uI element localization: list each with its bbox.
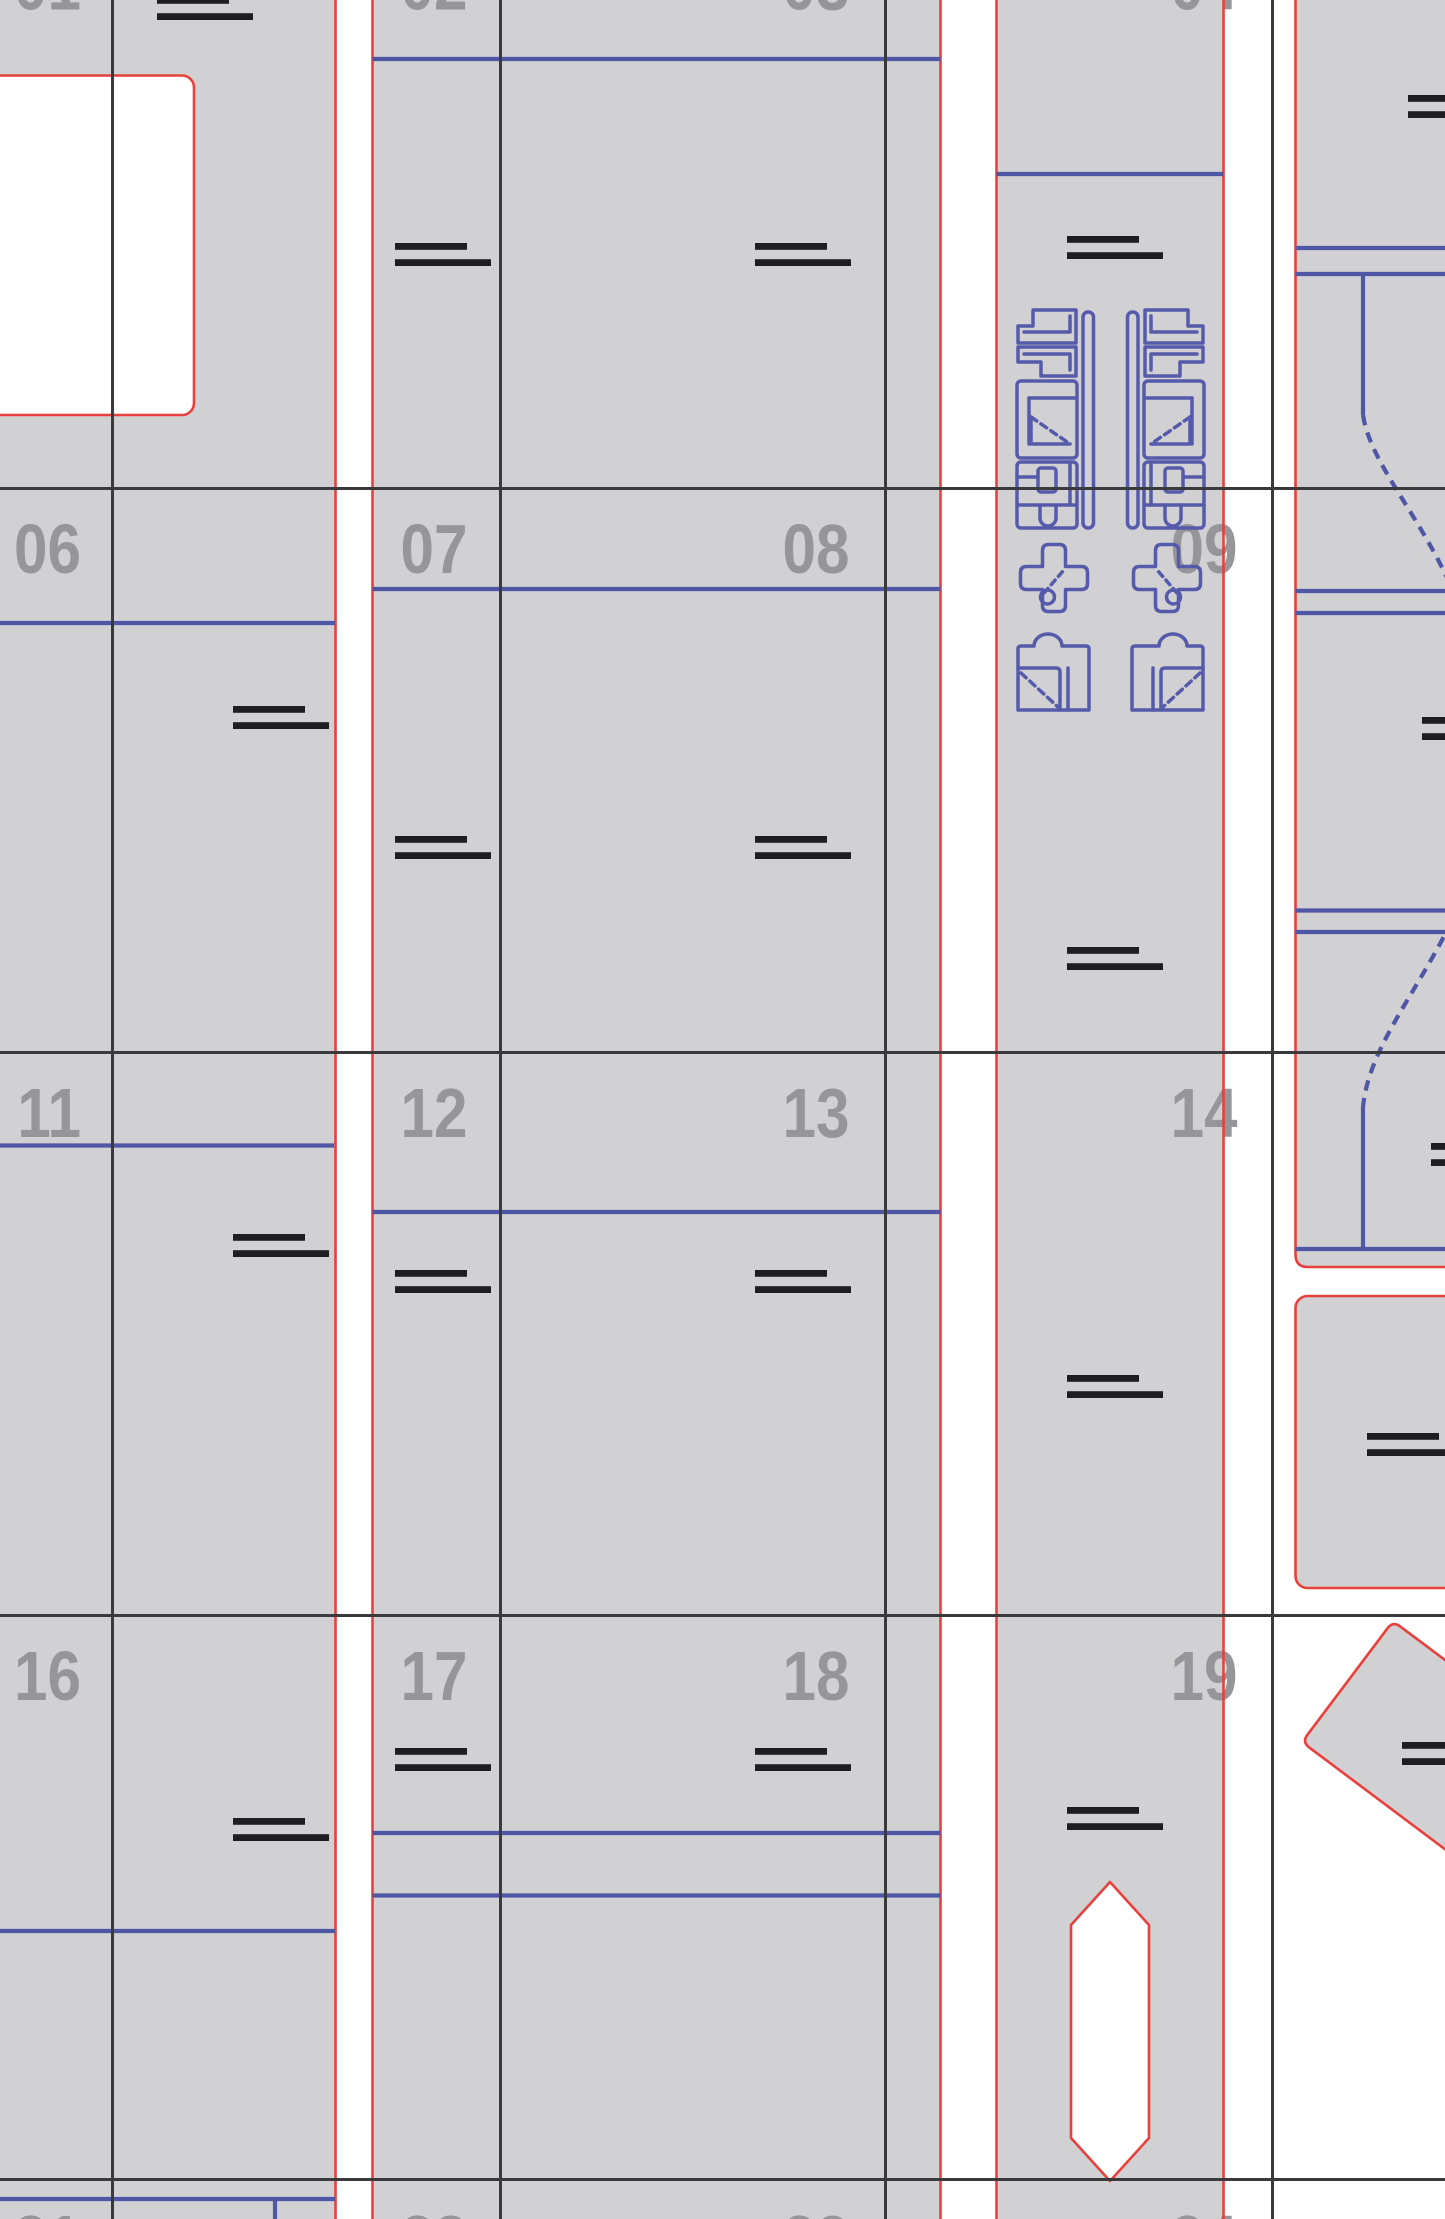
svg-text:13: 13 bbox=[783, 1074, 850, 1152]
svg-text:07: 07 bbox=[401, 510, 468, 588]
svg-text:11: 11 bbox=[17, 1074, 81, 1152]
svg-text:02: 02 bbox=[401, 0, 468, 24]
svg-text:04: 04 bbox=[1171, 0, 1238, 24]
svg-text:14: 14 bbox=[1171, 1074, 1238, 1152]
svg-text:24: 24 bbox=[1171, 2201, 1238, 2219]
svg-text:08: 08 bbox=[783, 510, 850, 588]
svg-text:18: 18 bbox=[783, 1637, 850, 1715]
svg-text:23: 23 bbox=[783, 2201, 850, 2219]
svg-text:06: 06 bbox=[14, 510, 81, 588]
svg-text:03: 03 bbox=[783, 0, 850, 24]
svg-text:19: 19 bbox=[1171, 1637, 1238, 1715]
svg-text:17: 17 bbox=[401, 1637, 468, 1715]
svg-text:22: 22 bbox=[401, 2201, 468, 2219]
svg-text:21: 21 bbox=[14, 2201, 81, 2219]
svg-text:16: 16 bbox=[14, 1637, 81, 1715]
svg-text:01: 01 bbox=[14, 0, 81, 24]
svg-text:12: 12 bbox=[401, 1074, 468, 1152]
